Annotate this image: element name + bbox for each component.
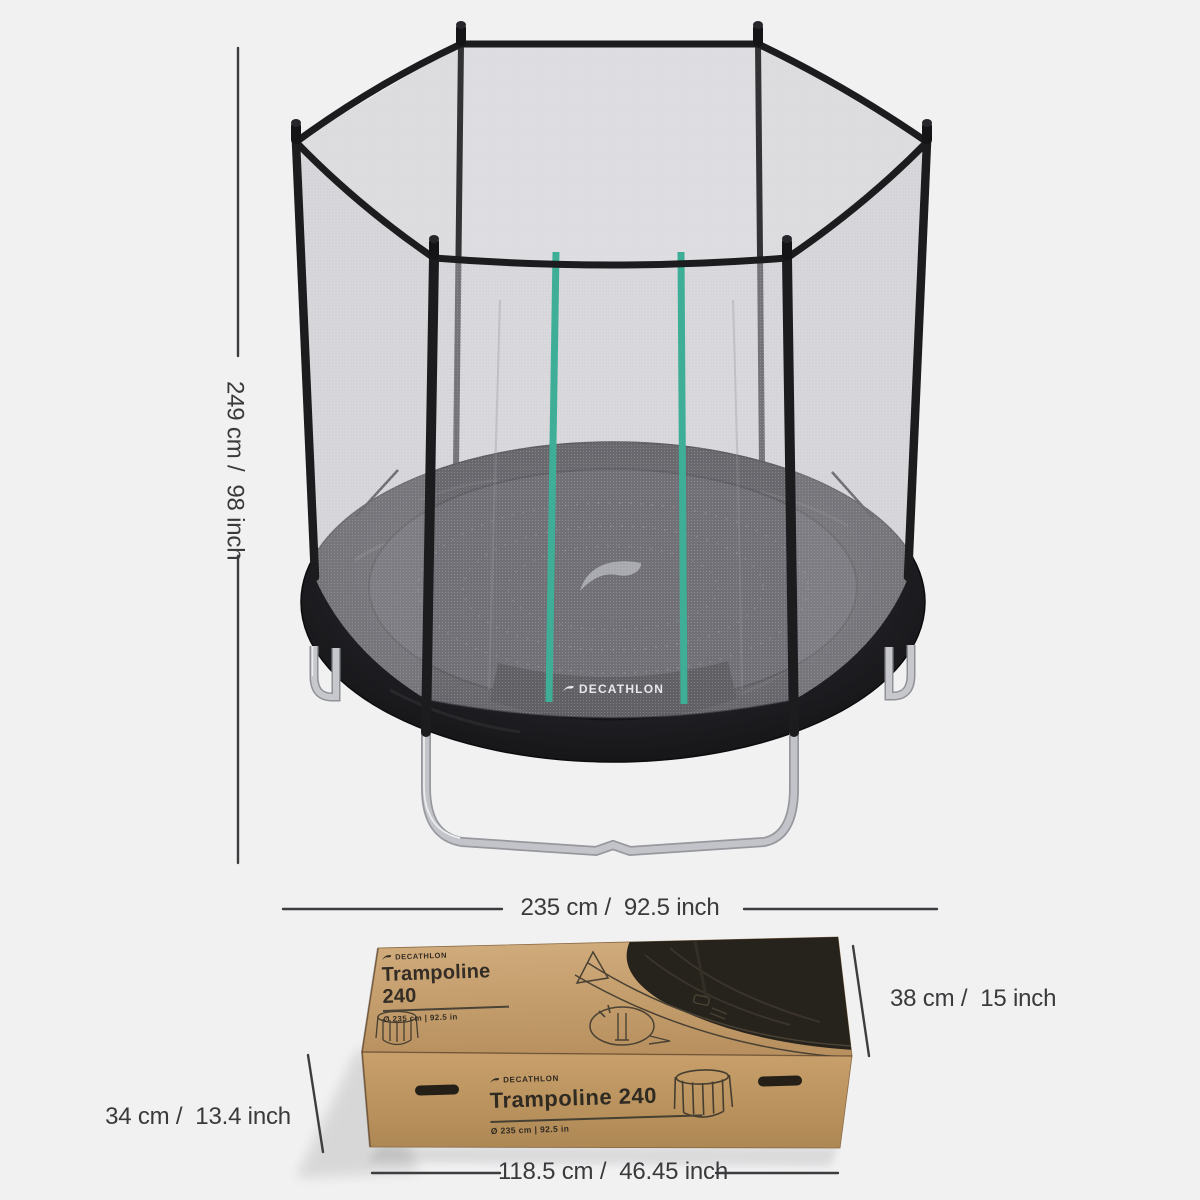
box-height-line (853, 946, 869, 1056)
box-top-title-line2: 240 (382, 985, 509, 1006)
decathlon-logo-icon (489, 1076, 500, 1084)
box-handle-right (758, 1075, 802, 1086)
pad-brand-label: DECATHLON (579, 682, 664, 696)
pad-brand-wordmark: DECATHLON (562, 682, 664, 696)
box-top-title-line1: Trampoline (381, 963, 508, 984)
dimension-label-trampoline-diameter: 235 cm / 92.5 inch (521, 895, 720, 921)
dimension-label-box-length: 118.5 cm / 46.45 inch (498, 1159, 728, 1185)
decathlon-logo-icon (381, 953, 392, 961)
decathlon-logo-icon (562, 684, 575, 694)
box-top-panel-text: DECATHLON Trampoline 240 Ø 235 cm | 92.5… (381, 949, 509, 1024)
product-dimension-sheet: 249 cm / 98 inch 235 cm / 92.5 inch 38 c… (0, 0, 1200, 1200)
box-handle-left (415, 1084, 459, 1095)
trampoline-and-box-illustration (0, 0, 1200, 1200)
dimension-label-box-height: 38 cm / 15 inch (890, 986, 1056, 1012)
packaging-box (296, 934, 854, 1178)
box-front-panel-text: DECATHLON Trampoline 240 Ø 235 cm | 92.5… (489, 1069, 703, 1136)
box-top-brand-label: DECATHLON (395, 951, 447, 962)
dimension-label-box-depth: 34 cm / 13.4 inch (105, 1104, 291, 1130)
net-door-stripe-right (681, 252, 684, 704)
mat-size-number: 240 (600, 616, 626, 627)
dimension-label-trampoline-height: 249 cm / 98 inch (221, 381, 247, 560)
box-front-title: Trampoline 240 (489, 1081, 702, 1114)
box-front-brand-label: DECATHLON (503, 1074, 559, 1085)
